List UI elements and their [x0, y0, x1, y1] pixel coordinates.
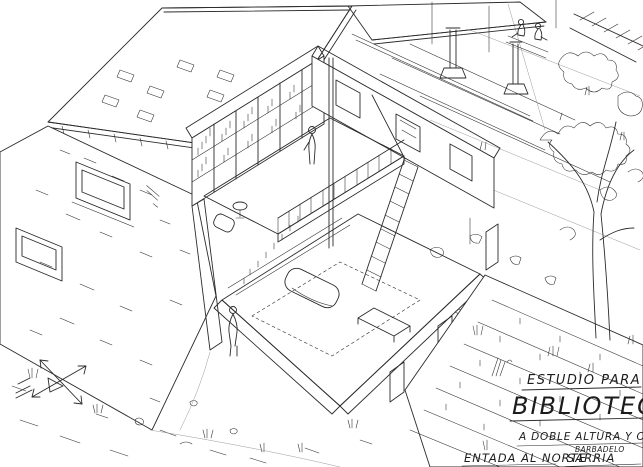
title-main: BIBLIOTECA — [512, 392, 643, 420]
bookshelf-wall — [192, 56, 324, 206]
rug — [252, 262, 420, 356]
mezzanine-fascia — [278, 156, 404, 242]
mezzanine-railing — [278, 140, 404, 234]
roof-ridge — [162, 6, 352, 12]
title-kicker: ESTUDIO PARA — [527, 373, 641, 388]
standing-figure — [229, 307, 237, 357]
title-footer-place: SARRIA — [567, 451, 615, 465]
sofa — [282, 265, 343, 311]
title-subtitle: A DOBLE ALTURA Y ORI- — [518, 431, 643, 443]
far-roof — [348, 2, 546, 44]
left-exterior-wall — [0, 126, 216, 430]
ground-strokes — [12, 386, 372, 463]
sketch-page: ESTUDIO PARA BIBLIOTECA A DOBLE ALTURA Y… — [0, 0, 643, 467]
armchair — [212, 202, 247, 234]
foliage-scribble — [540, 122, 630, 174]
slate-tiles — [102, 60, 234, 122]
terrace-stairs — [570, 12, 643, 62]
foliage-scribble — [559, 52, 643, 116]
column-icon — [504, 42, 528, 94]
northeast-wall — [312, 56, 494, 208]
under-mezzanine-shelves — [228, 216, 350, 295]
plant-ticks — [480, 86, 624, 150]
library-cutaway-sketch: ESTUDIO PARA BIBLIOTECA A DOBLE ALTURA Y… — [0, 0, 643, 467]
upper-library-level — [192, 56, 494, 291]
cut-band-front-left — [214, 300, 340, 414]
construction-guide-lines — [420, 4, 640, 250]
cut-pillar-right — [486, 224, 498, 270]
loose-stones — [430, 234, 556, 284]
tree-trunk — [548, 122, 634, 340]
coffee-table — [358, 308, 410, 342]
